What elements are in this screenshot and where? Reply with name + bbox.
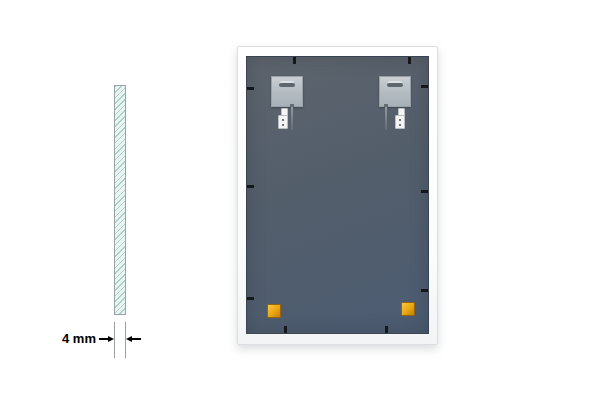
retainer-clip bbox=[293, 57, 296, 64]
plug-hole bbox=[282, 119, 284, 121]
retainer-clip bbox=[247, 297, 254, 300]
plug-hole bbox=[282, 124, 284, 126]
hanging-plate bbox=[379, 76, 411, 107]
plug-hole bbox=[399, 124, 401, 126]
wall-plug bbox=[395, 108, 405, 129]
arrow-head-icon bbox=[108, 336, 114, 342]
retainer-clip bbox=[421, 289, 428, 292]
retainer-clip bbox=[247, 185, 254, 188]
screw bbox=[291, 104, 293, 130]
hanging-plate bbox=[271, 76, 303, 107]
mirror-frame bbox=[237, 46, 438, 345]
thickness-label: 4 mm bbox=[44, 331, 96, 346]
plug-body bbox=[278, 115, 288, 129]
plug-hole bbox=[399, 119, 401, 121]
dimension-extension-line-left bbox=[114, 322, 115, 358]
glass-cross-section bbox=[114, 85, 126, 315]
retainer-clip bbox=[421, 190, 428, 193]
plate-slot bbox=[387, 83, 403, 87]
foam-pad bbox=[401, 302, 415, 316]
retainer-clip bbox=[385, 326, 388, 333]
retainer-clip bbox=[284, 326, 287, 333]
wall-plug bbox=[278, 108, 288, 129]
plate-slot bbox=[279, 83, 295, 87]
product-illustration: 4 mm bbox=[0, 0, 600, 400]
plug-body bbox=[395, 115, 405, 129]
screw bbox=[385, 104, 387, 130]
arrow-head-icon bbox=[126, 336, 132, 342]
retainer-clip bbox=[247, 87, 254, 90]
mirror-back-panel bbox=[246, 56, 429, 334]
retainer-clip bbox=[421, 85, 428, 88]
retainer-clip bbox=[408, 57, 411, 64]
foam-pad bbox=[267, 304, 281, 318]
arrow-shaft bbox=[131, 338, 141, 340]
